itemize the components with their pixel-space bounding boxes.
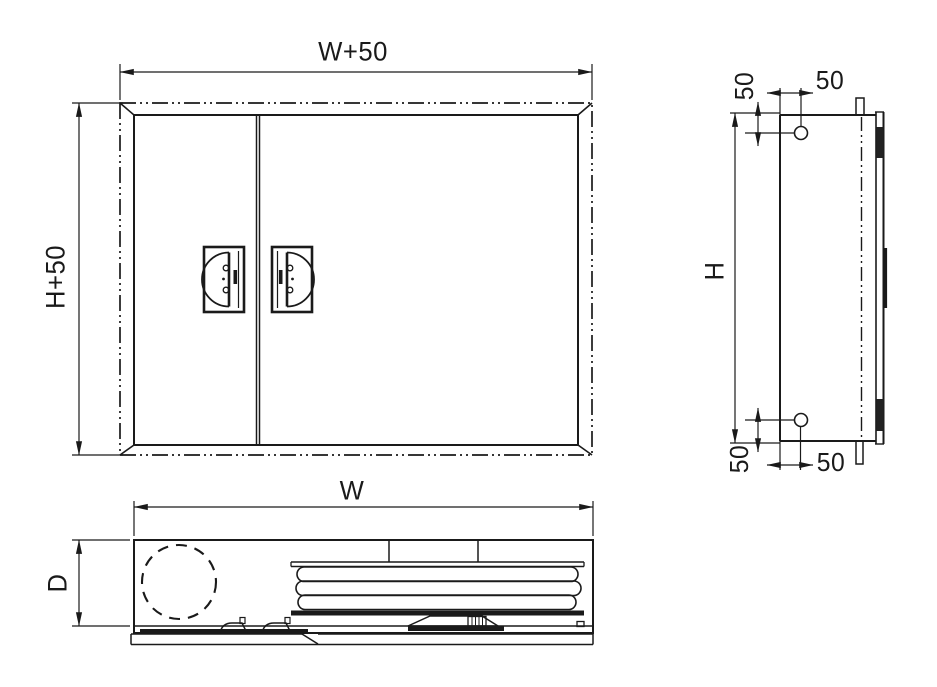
dim-label-front-height: H+50 [43,245,70,309]
left-door-handle [202,247,244,312]
dim-label-side-bottom-vertical-offset: 50 [726,445,752,473]
base-shadow-left [140,629,308,632]
dim-front-width [120,64,592,100]
right-door-handle [272,247,314,312]
side-view [730,88,886,470]
dim-bottom-width [134,501,593,536]
dim-label-bottom-depth: D [45,574,72,593]
dim-front-height [72,103,123,455]
front-face-strip [131,634,593,645]
bottom-view [72,501,593,645]
technical-drawing-sheet: W+50 H+50 H 50 50 50 50 W D [0,0,937,687]
dim-label-side-top-horizontal-offset: 50 [816,67,844,93]
drawing-linework [0,0,937,687]
hose-tray-plate [291,611,584,616]
front-outer-flange [120,103,592,455]
back-panel-joints [389,541,478,563]
front-door-frame [134,115,578,445]
valve-bracket [408,616,584,627]
dim-label-side-height: H [702,262,729,281]
base-shadow-center [408,627,504,632]
top-mounting-tab [856,98,864,115]
front-view [72,64,592,455]
dim-label-bottom-width: W [340,478,365,505]
right-handle-latch [279,270,283,284]
door-split-line [257,115,260,445]
inlet-dashed-circle [142,545,216,619]
bottom-mounting-tab [856,441,863,464]
dim-label-side-top-vertical-offset: 50 [731,72,757,100]
dim-bottom-depth [72,540,130,626]
bottom-mounting-hole [795,414,808,427]
top-hinge [877,127,884,158]
side-door-edge [875,112,884,444]
top-mounting-hole [795,127,808,140]
bottom-hinge [877,399,884,431]
dim-label-side-bottom-horizontal-offset: 50 [817,449,845,475]
hose-pack [291,562,584,616]
dim-label-front-width: W+50 [318,39,388,66]
frame-miter-lines [120,103,592,455]
dim-side-height [730,113,780,443]
left-handle-latch [234,270,238,284]
